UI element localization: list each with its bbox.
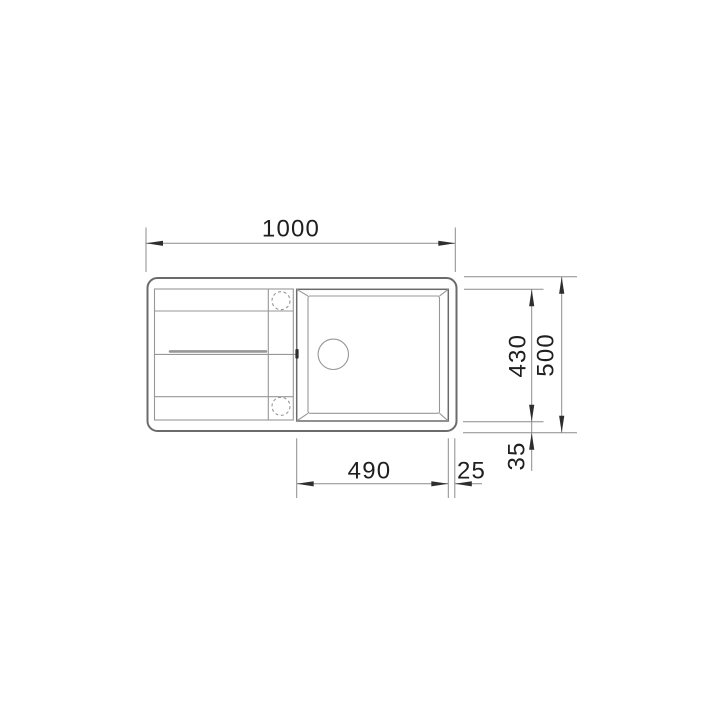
drain-hole	[318, 339, 348, 369]
label-overall-width: 1000	[262, 216, 320, 243]
arrow-490-right	[431, 481, 448, 486]
arrow-490-left	[297, 481, 314, 486]
overflow-mark	[295, 349, 298, 359]
sink-inner-lines	[154, 289, 448, 421]
bowl-inner-edge	[308, 296, 440, 413]
bowl-outer-edge	[297, 289, 449, 421]
label-bowl-depth: 430	[505, 334, 532, 378]
arrow-500-top	[559, 277, 564, 294]
technical-drawing-canvas: 1000 490 25 430 500 35	[0, 0, 720, 720]
label-bowl-width: 490	[348, 458, 392, 485]
tap-hole-bottom-icon	[272, 397, 290, 415]
arrow-1000-right	[438, 241, 455, 246]
arrow-430-bottom	[529, 405, 534, 422]
label-gap-right: 25	[457, 458, 486, 485]
bowl-corner-chamfers	[297, 289, 449, 421]
arrow-1000-left	[146, 241, 163, 246]
arrow-430-top	[529, 289, 534, 306]
tap-hole-top-icon	[272, 292, 290, 310]
arrow-500-bottom	[559, 416, 564, 433]
technical-drawing-page: 1000 490 25 430 500 35	[0, 0, 720, 720]
label-overall-depth: 500	[533, 333, 560, 377]
dimension-labels: 1000 490 25 430 500 35	[262, 216, 560, 485]
label-gap-bottom: 35	[504, 441, 531, 470]
